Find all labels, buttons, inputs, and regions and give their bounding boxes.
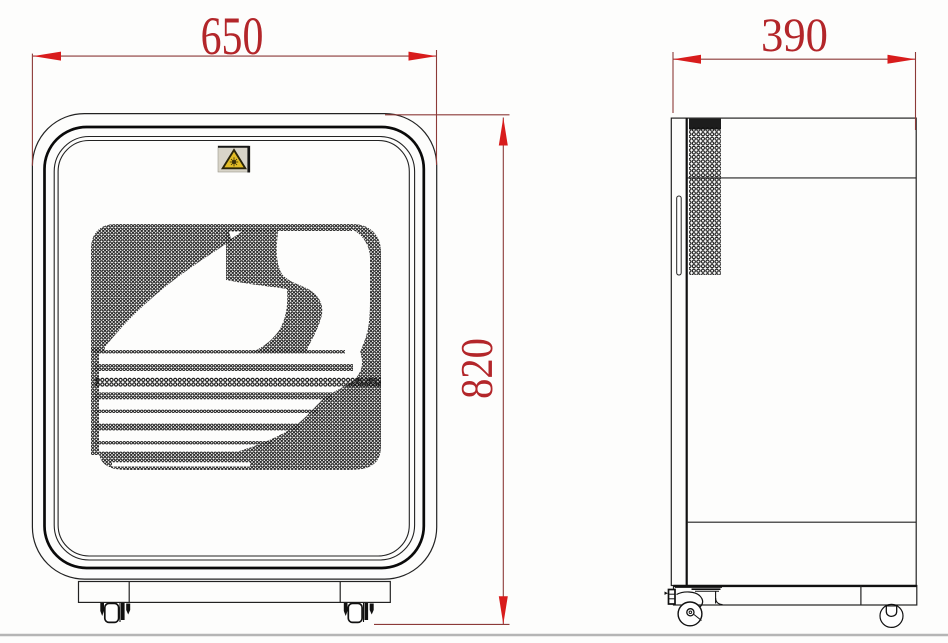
svg-text:650: 650 xyxy=(201,7,264,66)
svg-text:390: 390 xyxy=(761,10,828,63)
svg-text:820: 820 xyxy=(453,338,502,399)
